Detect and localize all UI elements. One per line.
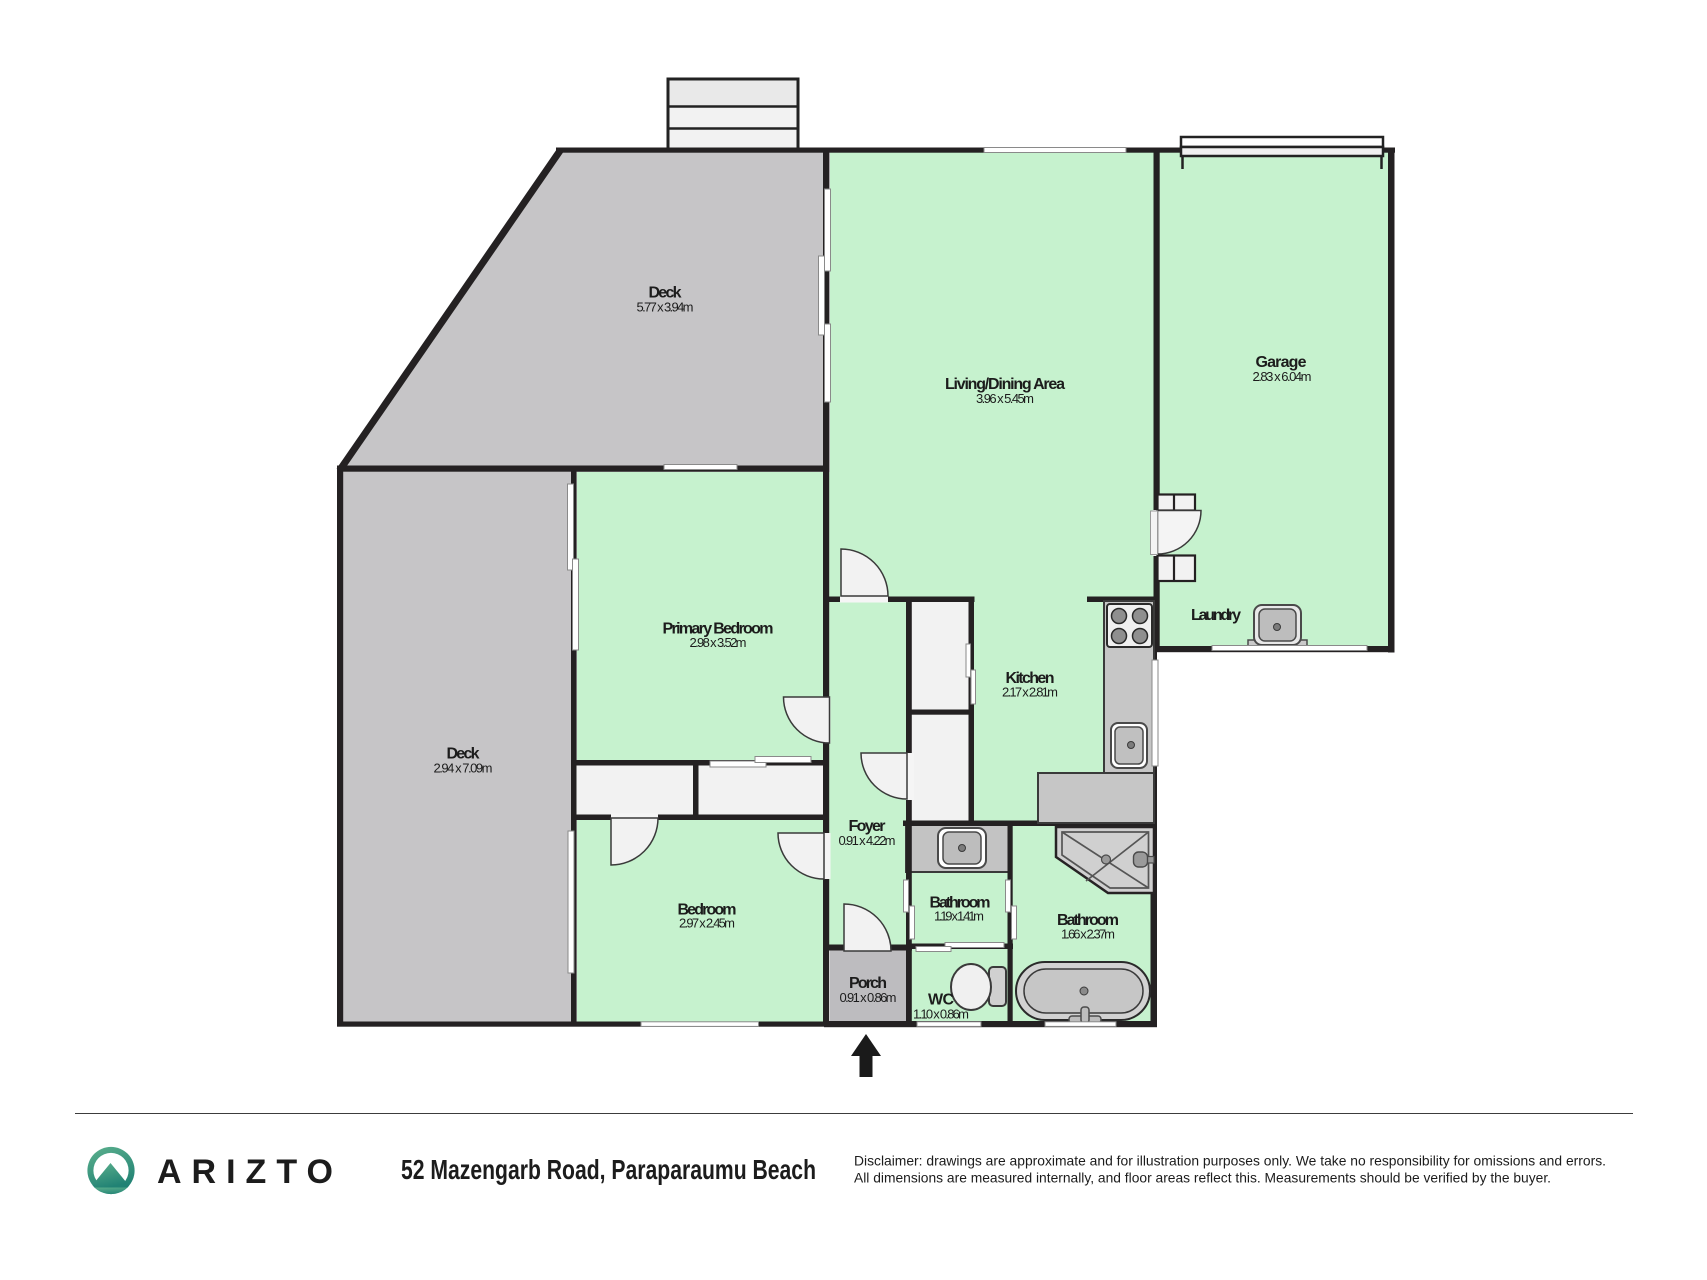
svg-text:52 Mazengarb Road, Paraparaumu: 52 Mazengarb Road, Paraparaumu Beach [401, 1154, 816, 1185]
svg-text:2.17 x 2.81m: 2.17 x 2.81m [1002, 685, 1058, 700]
svg-text:5.77 x 3.94m: 5.77 x 3.94m [637, 300, 694, 315]
svg-text:2.94 x 7.09m: 2.94 x 7.09m [434, 761, 493, 776]
svg-text:All dimensions are measured in: All dimensions are measured internally, … [854, 1170, 1551, 1186]
svg-text:0.91 x 4.22m: 0.91 x 4.22m [839, 833, 896, 848]
svg-text:0.91 x 0.86m: 0.91 x 0.86m [840, 990, 897, 1005]
svg-text:ARIZTO: ARIZTO [157, 1153, 343, 1191]
svg-text:1.19 x 1.41m: 1.19 x 1.41m [934, 909, 984, 924]
svg-text:3.96 x 5.45m: 3.96 x 5.45m [976, 391, 1034, 406]
svg-text:1.66 x 2.37m: 1.66 x 2.37m [1061, 927, 1115, 942]
svg-text:Disclaimer: drawings are appro: Disclaimer: drawings are approximate and… [854, 1153, 1606, 1169]
svg-text:Laundry: Laundry [1191, 607, 1241, 624]
svg-text:2.83 x 6.04m: 2.83 x 6.04m [1253, 369, 1312, 384]
svg-text:2.98 x 3.52m: 2.98 x 3.52m [690, 635, 747, 650]
svg-text:2.97 x 2.45m: 2.97 x 2.45m [679, 916, 735, 931]
svg-text:1.10 x 0.86m: 1.10 x 0.86m [913, 1007, 969, 1022]
